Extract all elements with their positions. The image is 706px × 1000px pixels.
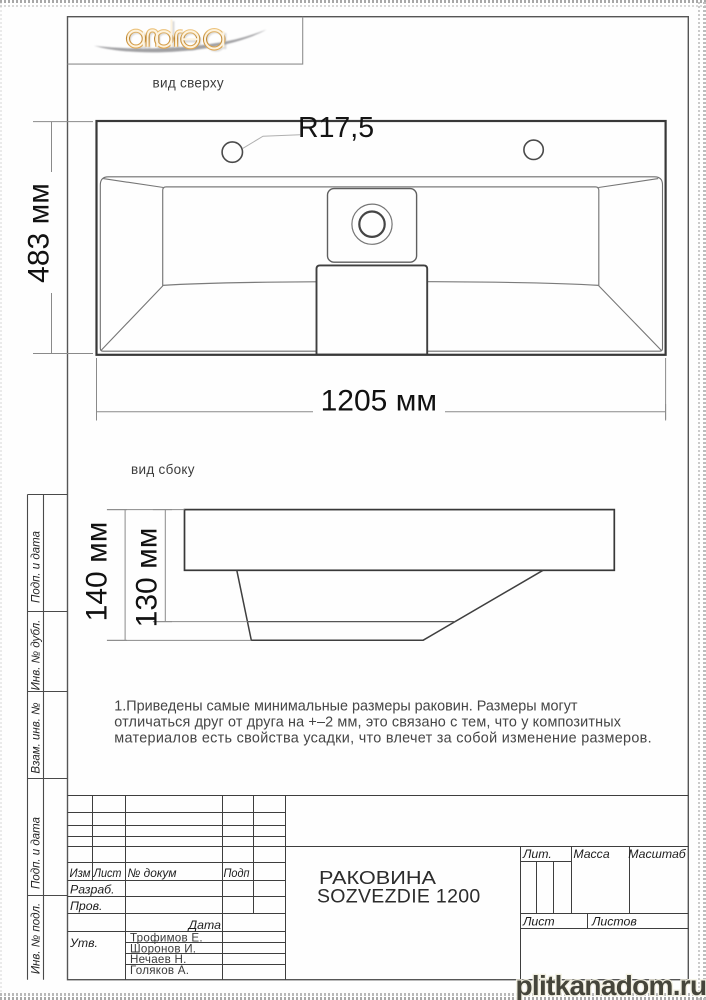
- svg-text:1205 мм: 1205 мм: [321, 385, 437, 418]
- svg-text:Лист: Лист: [93, 866, 122, 880]
- svg-text:Утв.: Утв.: [69, 936, 98, 950]
- svg-text:Инв. № подл.: Инв. № подл.: [31, 903, 43, 974]
- svg-text:R17,5: R17,5: [298, 112, 374, 144]
- svg-text:Лист: Лист: [522, 915, 555, 929]
- svg-text:Масса: Масса: [573, 847, 610, 861]
- svg-text:Дата: Дата: [187, 918, 222, 932]
- svg-text:отличаться друг от друга на +–: отличаться друг от друга на +–2 мм, это …: [114, 715, 621, 731]
- svg-text:1.Приведены самые минимальные: 1.Приведены самые минимальные размеры ра…: [114, 699, 578, 715]
- svg-text:Пров.: Пров.: [70, 899, 102, 913]
- svg-text:№ докум: № докум: [128, 866, 178, 880]
- svg-text:140 мм: 140 мм: [81, 522, 114, 622]
- svg-text:вид сбоку: вид сбоку: [131, 462, 195, 477]
- svg-text:Листов: Листов: [591, 915, 637, 929]
- svg-text:130 мм: 130 мм: [131, 528, 164, 628]
- svg-text:Голяков А.: Голяков А.: [130, 964, 189, 977]
- svg-text:Инв. № дубл.: Инв. № дубл.: [31, 620, 43, 691]
- svg-text:материалов есть свойства усадк: материалов есть свойства усадки, что вле…: [114, 730, 652, 746]
- svg-text:Взам. инв. №: Взам. инв. №: [31, 702, 43, 774]
- svg-text:483 мм: 483 мм: [23, 183, 56, 283]
- svg-text:вид сверху: вид сверху: [153, 76, 224, 91]
- svg-text:Изм: Изм: [70, 866, 92, 880]
- svg-text:Разраб.: Разраб.: [70, 883, 115, 897]
- svg-text:plitkanadom.ru: plitkanadom.ru: [516, 970, 706, 1000]
- svg-text:Лит.: Лит.: [522, 847, 552, 861]
- svg-text:Подп: Подп: [224, 866, 250, 880]
- svg-text:SOZVEZDIE 1200: SOZVEZDIE 1200: [317, 886, 481, 908]
- svg-text:Подп. и дата: Подп. и дата: [31, 531, 43, 603]
- svg-text:Подп. и дата: Подп. и дата: [31, 817, 43, 889]
- svg-text:Масштаб: Масштаб: [628, 847, 687, 861]
